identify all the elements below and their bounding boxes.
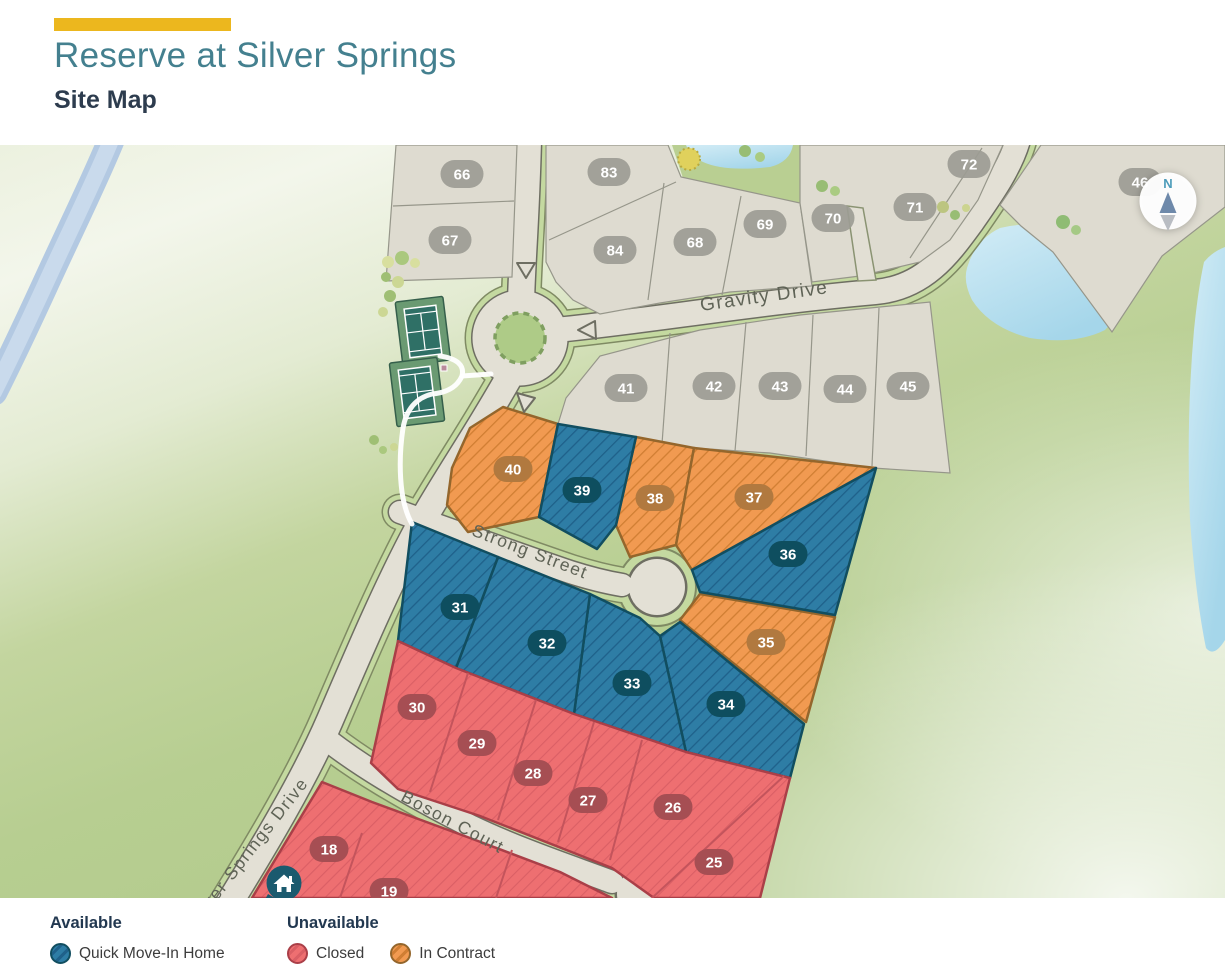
svg-text:41: 41 — [618, 381, 635, 398]
svg-text:19: 19 — [381, 884, 398, 899]
lot-badge-34[interactable]: 34 — [707, 691, 746, 717]
svg-text:44: 44 — [837, 382, 854, 399]
lot-badge-28[interactable]: 28 — [514, 760, 553, 786]
lot-badge-84[interactable]: 84 — [594, 236, 637, 264]
svg-text:69: 69 — [757, 217, 774, 234]
lot-badge-68[interactable]: 68 — [674, 228, 717, 256]
map: Gravity DriveStrong StreetBoson CourtSil… — [0, 145, 1225, 898]
svg-text:43: 43 — [772, 379, 789, 396]
svg-text:68: 68 — [687, 235, 704, 252]
svg-text:42: 42 — [706, 379, 723, 396]
svg-text:18: 18 — [321, 842, 338, 859]
svg-text:28: 28 — [525, 766, 542, 783]
page-title: Reserve at Silver Springs — [54, 36, 456, 76]
lot-badge-19[interactable]: 19 — [370, 878, 409, 898]
svg-text:31: 31 — [452, 600, 469, 617]
closed-swatch-icon — [287, 943, 308, 964]
svg-text:45: 45 — [900, 379, 917, 396]
lot-badge-32[interactable]: 32 — [528, 630, 567, 656]
lot-badge-38[interactable]: 38 — [636, 485, 675, 511]
legend-label: Quick Move-In Home — [79, 945, 225, 963]
svg-text:83: 83 — [601, 165, 618, 182]
svg-text:27: 27 — [580, 793, 597, 810]
lot-badge-67[interactable]: 67 — [429, 226, 472, 254]
header: Reserve at Silver Springs Site Map — [0, 0, 1225, 145]
lot-badge-33[interactable]: 33 — [613, 670, 652, 696]
lot-badge-45[interactable]: 45 — [887, 372, 930, 400]
lot-badge-43[interactable]: 43 — [759, 372, 802, 400]
legend-heading-unavailable: Unavailable — [287, 914, 495, 933]
svg-text:34: 34 — [718, 697, 735, 714]
lot-badge-69[interactable]: 69 — [744, 210, 787, 238]
lot-badge-30[interactable]: 30 — [398, 694, 437, 720]
site-map-page: Reserve at Silver Springs Site Map — [0, 0, 1225, 980]
svg-text:40: 40 — [505, 462, 522, 479]
quick-move-in-swatch-icon — [50, 943, 71, 964]
lot-badge-40[interactable]: 40 — [494, 456, 533, 482]
lot-badge-26[interactable]: 26 — [654, 794, 693, 820]
svg-text:72: 72 — [961, 157, 978, 174]
legend-item-closed: Closed — [287, 943, 364, 964]
legend-item-in-contract: In Contract — [390, 943, 495, 964]
svg-text:84: 84 — [607, 243, 624, 260]
lot-badge-42[interactable]: 42 — [693, 372, 736, 400]
legend: Available Quick Move-In Home Unavailable… — [0, 898, 1225, 980]
svg-text:25: 25 — [706, 855, 723, 872]
compass-n-label: N — [1163, 176, 1172, 191]
lot-badge-31[interactable]: 31 — [441, 594, 480, 620]
lot-badge-83[interactable]: 83 — [588, 158, 631, 186]
lot-badge-66[interactable]: 66 — [441, 160, 484, 188]
site-map-svg: Gravity DriveStrong StreetBoson CourtSil… — [0, 145, 1225, 898]
lot-badge-41[interactable]: 41 — [605, 374, 648, 402]
svg-text:39: 39 — [574, 483, 591, 500]
svg-text:26: 26 — [665, 800, 682, 817]
legend-available: Available Quick Move-In Home — [50, 914, 225, 964]
lot-badge-39[interactable]: 39 — [563, 477, 602, 503]
svg-text:33: 33 — [624, 676, 641, 693]
legend-unavailable: Unavailable Closed In Contract — [287, 914, 495, 964]
legend-label: In Contract — [419, 945, 495, 963]
lot-badge-44[interactable]: 44 — [824, 375, 867, 403]
svg-text:71: 71 — [907, 200, 924, 217]
lot-badge-70[interactable]: 70 — [812, 204, 855, 232]
lot-badge-36[interactable]: 36 — [769, 541, 808, 567]
lot-badge-72[interactable]: 72 — [948, 150, 991, 178]
legend-label: Closed — [316, 945, 364, 963]
svg-text:36: 36 — [780, 547, 797, 564]
svg-text:66: 66 — [454, 167, 471, 184]
lot-badge-29[interactable]: 29 — [458, 730, 497, 756]
svg-text:70: 70 — [825, 211, 842, 228]
svg-text:67: 67 — [442, 233, 459, 250]
svg-text:29: 29 — [469, 736, 486, 753]
lot-badge-25[interactable]: 25 — [695, 849, 734, 875]
svg-text:35: 35 — [758, 635, 775, 652]
legend-item-quick-move-in: Quick Move-In Home — [50, 943, 225, 964]
lot-badge-35[interactable]: 35 — [747, 629, 786, 655]
lot-badge-27[interactable]: 27 — [569, 787, 608, 813]
page-subtitle: Site Map — [54, 86, 157, 115]
svg-text:38: 38 — [647, 491, 664, 508]
in-contract-swatch-icon — [390, 943, 411, 964]
legend-heading-available: Available — [50, 914, 225, 933]
accent-bar — [54, 18, 231, 31]
lot-badge-37[interactable]: 37 — [735, 484, 774, 510]
svg-text:37: 37 — [746, 490, 763, 507]
svg-text:32: 32 — [539, 636, 556, 653]
cul-de-sac — [629, 559, 685, 615]
roundabout-island — [495, 313, 545, 363]
lot-badge-18[interactable]: 18 — [310, 836, 349, 862]
svg-text:30: 30 — [409, 700, 426, 717]
lot-badge-71[interactable]: 71 — [894, 193, 937, 221]
